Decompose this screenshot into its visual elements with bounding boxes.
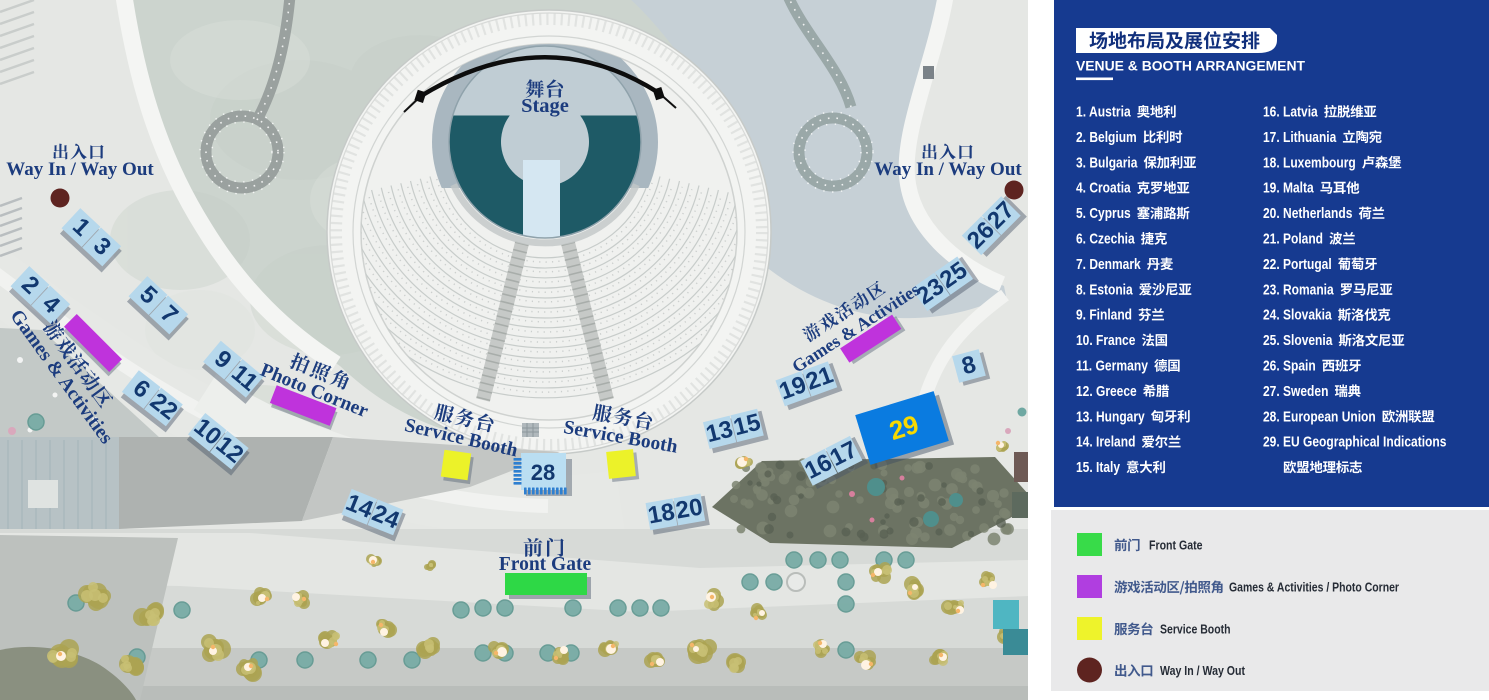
svg-text:8. Estonia: 8. Estonia <box>1076 281 1133 298</box>
svg-text:16. Latvia: 16. Latvia <box>1263 104 1318 121</box>
svg-text:18. Luxembourg: 18. Luxembourg <box>1263 154 1356 171</box>
svg-text:12. Greece: 12. Greece <box>1076 383 1137 400</box>
svg-text:9. Finland: 9. Finland <box>1076 307 1132 324</box>
svg-text:13. Hungary: 13. Hungary <box>1076 408 1145 425</box>
svg-text:22. Portugal: 22. Portugal <box>1263 256 1332 273</box>
svg-text:Service Booth: Service Booth <box>1160 622 1231 637</box>
svg-text:15. Italy: 15. Italy <box>1076 459 1121 476</box>
svg-text:VENUE & BOOTH ARRANGEMENT: VENUE & BOOTH ARRANGEMENT <box>1076 59 1305 75</box>
svg-text:4. Croatia: 4. Croatia <box>1076 180 1131 197</box>
svg-text:17. Lithuania: 17. Lithuania <box>1263 129 1337 146</box>
svg-text:1. Austria: 1. Austria <box>1076 104 1131 121</box>
svg-text:24. Slovakia: 24. Slovakia <box>1263 307 1332 324</box>
svg-text:28: 28 <box>531 460 555 485</box>
svg-text:29. EU Geographical Indication: 29. EU Geographical Indications <box>1263 434 1446 451</box>
svg-text:Games & Activities / Photo Cor: Games & Activities / Photo Corner <box>1229 580 1399 595</box>
svg-text:Way In / Way Out: Way In / Way Out <box>874 159 1022 180</box>
svg-text:18: 18 <box>646 498 677 529</box>
svg-text:Front Gate: Front Gate <box>1149 538 1203 553</box>
svg-text:23. Romania: 23. Romania <box>1263 281 1334 298</box>
svg-text:7. Denmark: 7. Denmark <box>1076 256 1141 273</box>
svg-text:28. European Union: 28. European Union <box>1263 408 1376 425</box>
svg-text:Way In / Way Out: Way In / Way Out <box>6 159 154 180</box>
svg-text:Front Gate: Front Gate <box>499 554 592 575</box>
svg-text:2. Belgium: 2. Belgium <box>1076 129 1137 146</box>
svg-text:20. Netherlands: 20. Netherlands <box>1263 205 1352 222</box>
svg-text:Way In / Way Out: Way In / Way Out <box>1160 663 1246 678</box>
svg-text:Stage: Stage <box>521 95 569 117</box>
svg-text:25. Slovenia: 25. Slovenia <box>1263 332 1333 349</box>
svg-text:26. Spain: 26. Spain <box>1263 358 1316 375</box>
svg-text:20: 20 <box>674 493 705 524</box>
svg-text:14. Ireland: 14. Ireland <box>1076 434 1135 451</box>
svg-text:27. Sweden: 27. Sweden <box>1263 383 1328 400</box>
svg-text:10. France: 10. France <box>1076 332 1135 349</box>
svg-text:19. Malta: 19. Malta <box>1263 180 1314 197</box>
svg-text:21. Poland: 21. Poland <box>1263 231 1323 248</box>
svg-text:11. Germany: 11. Germany <box>1076 358 1149 375</box>
svg-text:3. Bulgaria: 3. Bulgaria <box>1076 154 1138 171</box>
svg-text:5. Cyprus: 5. Cyprus <box>1076 205 1131 222</box>
svg-text:6. Czechia: 6. Czechia <box>1076 231 1135 248</box>
